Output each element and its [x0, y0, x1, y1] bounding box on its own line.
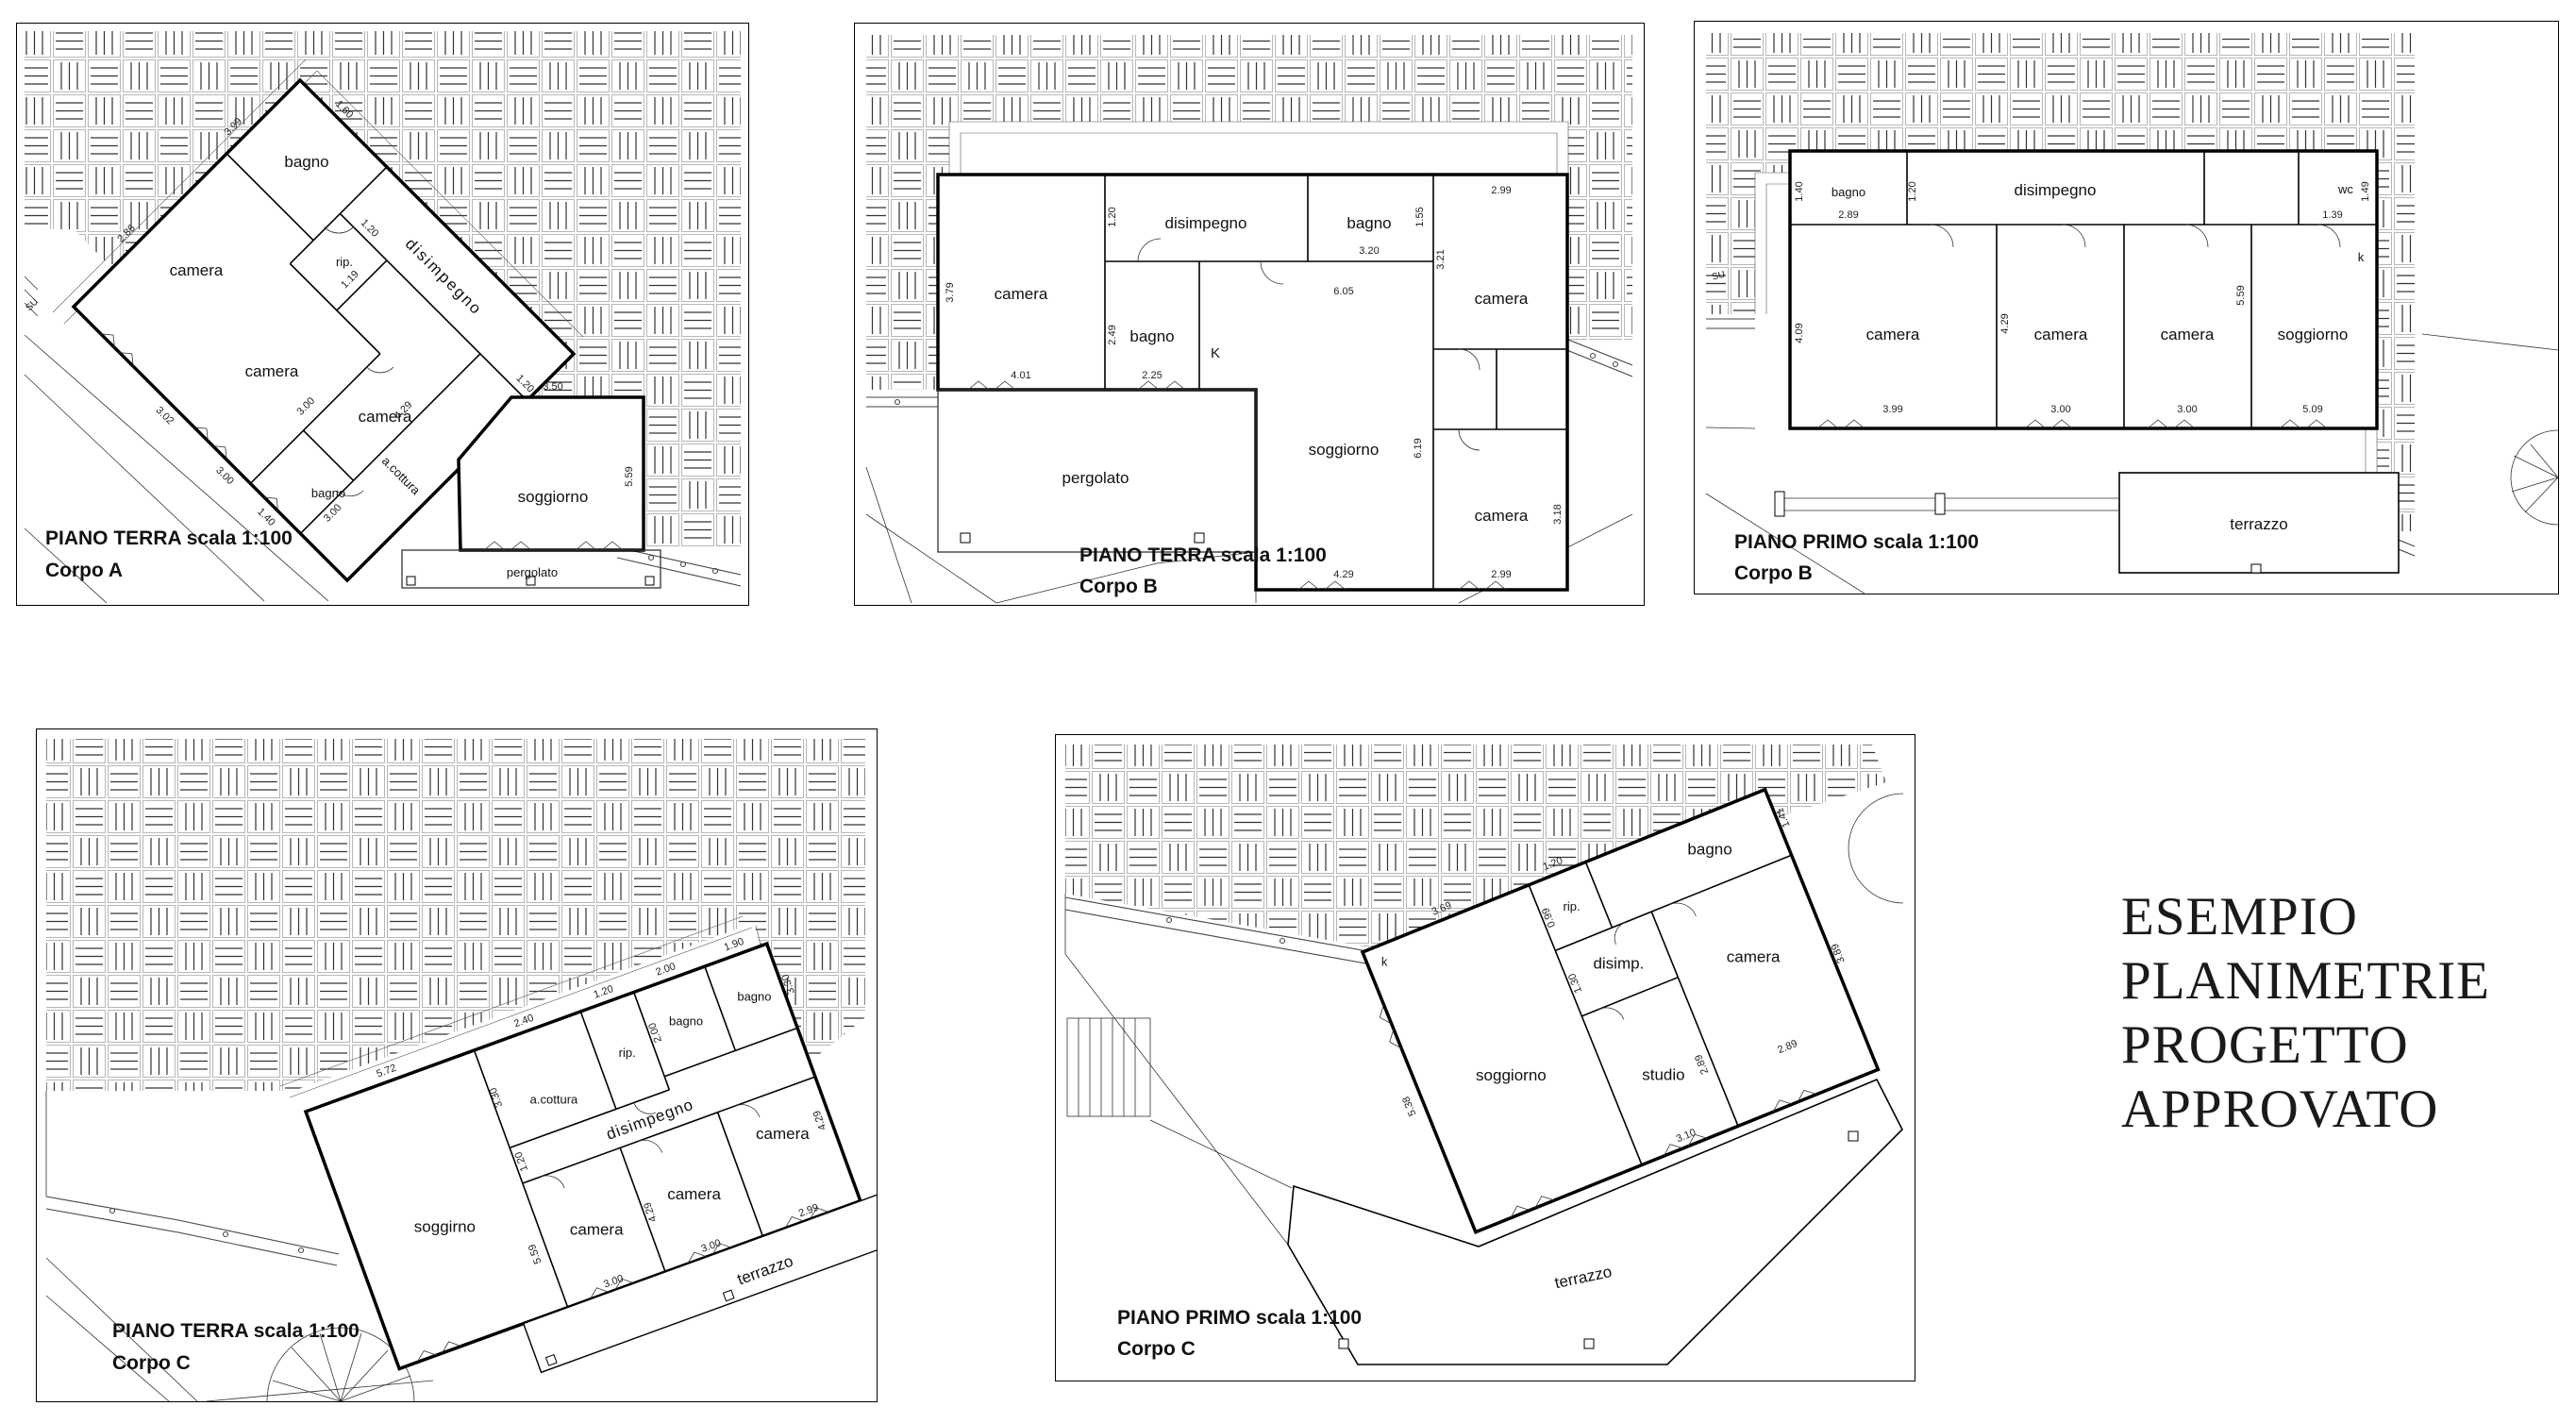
room-label-disimpegno: disimpegno [1165, 214, 1247, 232]
room-label-camera: camera [667, 1185, 721, 1203]
room-label-bagno: bagno [1832, 185, 1865, 199]
dim-label: 2.99 [1491, 185, 1511, 196]
plan-caption-line2: Corpo B [1079, 576, 1158, 597]
dim-label: 3.99 [1882, 404, 1902, 415]
title-line: APPROVATO [2121, 1078, 2565, 1142]
plan-caption-line1: PIANO PRIMO scala 1:100 [1117, 1307, 1362, 1329]
room-label-soggiorno: soggiorno [1309, 441, 1380, 459]
dim-label: 1.40 [255, 506, 277, 528]
dim-label: 5.59 [624, 466, 635, 486]
kitchen-label-k: K [1211, 345, 1220, 361]
room-label-bagno: bagno [1129, 327, 1174, 345]
room-label-disimp: disimp. [1593, 955, 1644, 973]
room-label-studio: studio [1642, 1065, 1684, 1083]
dim-label: 2.49 [1107, 325, 1118, 344]
plan-panel-corpo-c-piano-primo: terrazzo soggiorno k rip. disimp. bagno … [1055, 734, 1915, 1381]
room-label-pergolato: pergolato [507, 565, 558, 579]
plan-panel-corpo-b-piano-primo: bagno disimpegno wc k camera camera came… [1694, 21, 2559, 594]
floor-plan-drawing-corpo-c-terra: soggirno a.cottura rip. bagno bagno disi… [37, 729, 877, 1401]
title-line: ESEMPIO [2121, 885, 2565, 949]
dim-label: 1.90 [723, 936, 745, 954]
dim-label: 4.29 [1999, 313, 2011, 333]
room-label-rip: rip. [1564, 899, 1581, 913]
dim-label: 3.02 [154, 405, 176, 427]
dim-label: 1.40 [1794, 181, 1805, 201]
terrain-contour-lines [1065, 894, 1292, 1245]
dim-label: 3.79 [945, 282, 956, 302]
title-line: PLANIMETRIE [2121, 949, 2565, 1013]
dim-label: 4.29 [1333, 569, 1353, 580]
room-label-bagno: bagno [737, 989, 771, 1003]
terrace-post [1339, 1339, 1348, 1348]
room-label-bagno: bagno [284, 153, 328, 171]
room-label-bagno: bagno [1347, 214, 1391, 232]
dim-label: 1.55 [1414, 207, 1426, 226]
plan-caption-line2: Corpo C [112, 1352, 191, 1374]
external-stair [1067, 1018, 1150, 1116]
room-label-camera: camera [1475, 290, 1529, 308]
dim-label: 1.49 [2360, 181, 2371, 201]
floor-plan-drawing-corpo-b-terra: camera disimpegno bagno K bagno camera s… [855, 24, 1644, 605]
dim-label: 3.18 [1552, 504, 1564, 524]
title-line: PROGETTO [2121, 1013, 2565, 1078]
room-label-camera: camera [995, 285, 1048, 303]
plan-caption-line2: Corpo A [45, 560, 123, 581]
room-label-bagno: bagno [669, 1014, 703, 1029]
room-label-camera: camera [1866, 326, 1920, 343]
building-outline [938, 175, 1567, 590]
dim-label: 2.00 [654, 961, 677, 979]
room-label-rip: rip. [336, 255, 353, 269]
plan-caption-line1: PIANO TERRA scala 1:100 [112, 1320, 360, 1342]
dim-label: 3.50 [543, 381, 562, 393]
dim-label: 4.09 [1794, 323, 1805, 343]
dim-label: 3.00 [213, 464, 236, 487]
dim-label: 3.00 [2177, 404, 2197, 415]
pergola-post [407, 577, 415, 585]
room-label-soggiorno: soggiorno [2278, 326, 2349, 343]
room-label-disimpegno: disimpegno [2015, 181, 2097, 199]
pergola-post [645, 577, 654, 585]
dim-label: 1.39 [2322, 209, 2342, 221]
plan-panel-corpo-a-piano-terra: disimpegno a.cottura 1.60 1.20 1.20 3.99… [16, 23, 749, 606]
spiral-stair-fragment [2511, 430, 2558, 525]
dim-label: 5.09 [2302, 404, 2322, 415]
pergola-post [961, 533, 970, 543]
dim-label: 6.19 [1413, 438, 1424, 458]
room-label-camera: camera [570, 1220, 624, 1238]
room-label-camera: camera [1475, 507, 1529, 525]
terrace-post [1848, 1131, 1858, 1141]
dim-label: 1.20 [1907, 181, 1918, 201]
room-label-camera: camera [359, 408, 412, 426]
plan-caption-line1: PIANO PRIMO scala 1:100 [1734, 531, 1979, 553]
dim-label: 6.05 [1333, 286, 1353, 297]
room-label-camera: camera [245, 362, 299, 380]
terrace-post [1584, 1339, 1594, 1348]
kitchen-label-k: k [2358, 250, 2365, 264]
dim-label: 3.00 [2050, 404, 2070, 415]
dim-label: 3.20 [1359, 245, 1379, 257]
plan-caption-line1: PIANO TERRA scala 1:100 [45, 527, 293, 549]
room-label-soggiorno: soggiorno [518, 488, 589, 506]
room-label-terrazzo: terrazzo [2230, 515, 2287, 533]
sheet-title-block: ESEMPIO PLANIMETRIE PROGETTO APPROVATO [2121, 885, 2565, 1142]
dim-label: 2.89 [1838, 209, 1858, 221]
plan-panel-corpo-c-piano-terra: soggirno a.cottura rip. bagno bagno disi… [36, 728, 878, 1402]
dim-label: 2.25 [1142, 370, 1162, 381]
dim-label: 2.99 [1491, 569, 1511, 580]
dim-label: 5.59 [2235, 285, 2247, 305]
approved-project-plans-sheet: disimpegno a.cottura 1.60 1.20 1.20 3.99… [0, 0, 2576, 1423]
kitchen-label-k: k [1381, 954, 1388, 968]
floor-plan-drawing-corpo-b-primo: bagno disimpegno wc k camera camera came… [1695, 22, 2558, 594]
terrazzo-group [1775, 473, 2399, 573]
room-label-bagno: bagno [311, 486, 345, 500]
room-label-wc: wc [2337, 182, 2353, 196]
plan-caption-line2: Corpo C [1117, 1338, 1196, 1360]
room-label-camera: camera [2034, 326, 2088, 343]
rubble-wall [46, 1197, 339, 1265]
floor-plan-drawing-corpo-a-terra: disimpegno a.cottura 1.60 1.20 1.20 3.99… [17, 24, 748, 605]
room-label-acottura: a.cottura [530, 1093, 578, 1107]
plan-caption-line2: Corpo B [1734, 562, 1813, 584]
dim-label: 1.20 [593, 983, 615, 1001]
plan-panel-corpo-b-piano-terra: camera disimpegno bagno K bagno camera s… [854, 23, 1645, 606]
dim-label: 3.21 [1435, 249, 1447, 269]
dim-label: 4.01 [1011, 370, 1030, 381]
dim-label: 1.20 [1107, 207, 1118, 226]
dim-label: 2.40 [512, 1013, 535, 1030]
room-label-camera: camera [170, 261, 224, 279]
dim-label: 5.38 [1400, 1095, 1418, 1117]
rubble-wall [617, 548, 741, 586]
floor-plan-drawing-corpo-c-primo: terrazzo soggiorno k rip. disimp. bagno … [1056, 735, 1915, 1381]
room-label-camera: camera [756, 1125, 810, 1143]
room-label-camera: camera [1727, 948, 1781, 966]
room-label-bagno: bagno [1687, 841, 1731, 859]
plan-caption-line1: PIANO TERRA scala 1:100 [1079, 544, 1327, 566]
pergola-post [1195, 533, 1204, 543]
room-label-camera: camera [2161, 326, 2215, 343]
room-label-pergolato: pergolato [1062, 469, 1129, 487]
spiral-stair-fragment [1848, 794, 1903, 903]
room-label-rip: rip. [619, 1046, 636, 1060]
room-label-soggirno: soggirno [414, 1217, 476, 1235]
room-label-soggiorno: soggiorno [1476, 1066, 1547, 1084]
